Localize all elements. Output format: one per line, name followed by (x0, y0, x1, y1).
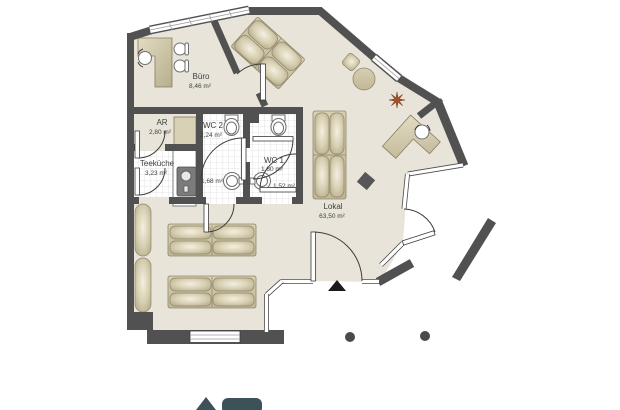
logo-house-icon (196, 397, 216, 410)
label-buero-area: 8,46 m² (189, 83, 212, 90)
label-anteroom152-area: 1,52 m² (273, 183, 296, 190)
label-anteroom168-area: 1,68 m² (201, 178, 224, 185)
door-facade-right (402, 209, 435, 245)
label-lokal-area: 63,50 m² (319, 213, 345, 220)
label-lokal-name: Lokal (323, 202, 342, 211)
kitchen-sink-icon (177, 167, 196, 196)
toilet-icon (271, 115, 286, 136)
window-bottom (190, 331, 240, 343)
column-icon (420, 331, 430, 341)
floor-plan: Büro 8,46 m² AR 2,80 m² WC 2 2,24 m² Tee… (0, 0, 620, 410)
label-wc1-name: WC 1 (264, 156, 285, 165)
logo-badge-icon (222, 398, 262, 410)
kitchenette (173, 117, 196, 206)
seating-group-2 (168, 276, 256, 308)
column-icon (345, 332, 355, 342)
seating-group-vertical (313, 111, 346, 199)
label-buero-name: Büro (193, 72, 210, 81)
cabinet (174, 117, 196, 147)
plant-starburst-icon (389, 92, 405, 108)
label-wc2-area: 2,24 m² (200, 132, 223, 139)
label-teekueche-area: 3,23 m² (145, 170, 168, 177)
floor-plan-canvas: Büro 8,46 m² AR 2,80 m² WC 2 2,24 m² Tee… (0, 0, 620, 410)
visitor-chair-icon (174, 60, 189, 72)
label-ar-name: AR (156, 118, 167, 127)
detached-wall (452, 218, 496, 281)
label-wc1-area: 1,80 m² (261, 166, 284, 173)
toilet-icon (224, 115, 239, 136)
label-teekueche-name: Teeküche (140, 159, 175, 168)
entrance-arrow-icon (328, 280, 346, 291)
label-ar-area: 2,80 m² (149, 129, 172, 136)
visitor-chair-icon (174, 43, 189, 55)
label-wc2-name: WC 2 (203, 121, 224, 130)
seating-group-1 (168, 224, 256, 256)
